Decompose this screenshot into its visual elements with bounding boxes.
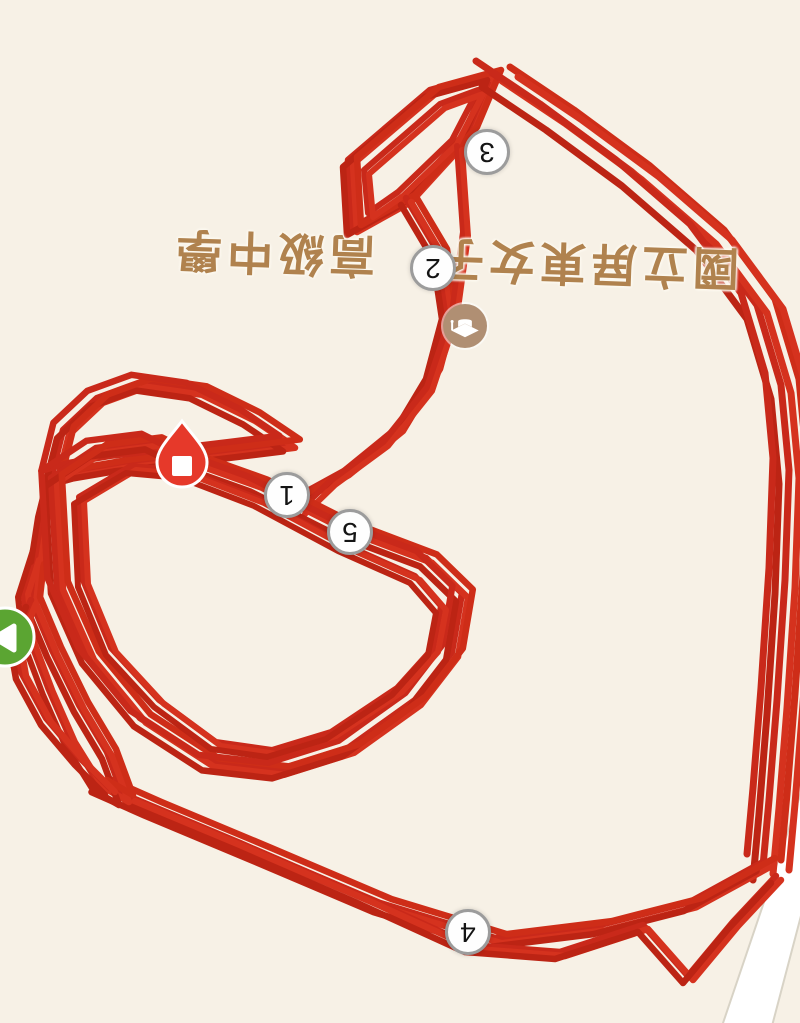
finish-marker[interactable]	[136, 412, 228, 512]
track-segment-right-descent	[492, 73, 789, 866]
start-marker[interactable]	[0, 597, 45, 677]
km-marker-1[interactable]: 1	[264, 472, 310, 518]
km-marker-5[interactable]: 5	[327, 509, 373, 555]
km-marker-3[interactable]: 3	[464, 129, 510, 175]
graduation-cap-icon	[443, 304, 487, 348]
school-label-part-a: 國立屏東女子	[432, 228, 740, 305]
track-segment-right-descent	[482, 87, 779, 880]
track-svg	[0, 0, 800, 1023]
track-segment-right-descent	[476, 61, 773, 854]
km-marker-4[interactable]: 4	[445, 909, 491, 955]
gps-track	[10, 61, 800, 983]
map-canvas[interactable]: 國立屏東女子 高級中學 32154	[0, 0, 800, 1023]
stop-square-icon	[172, 456, 192, 476]
finish-pin-body	[157, 421, 207, 487]
km-marker-2[interactable]: 2	[410, 245, 456, 291]
school-label-part-b: 高級中學	[170, 219, 376, 292]
